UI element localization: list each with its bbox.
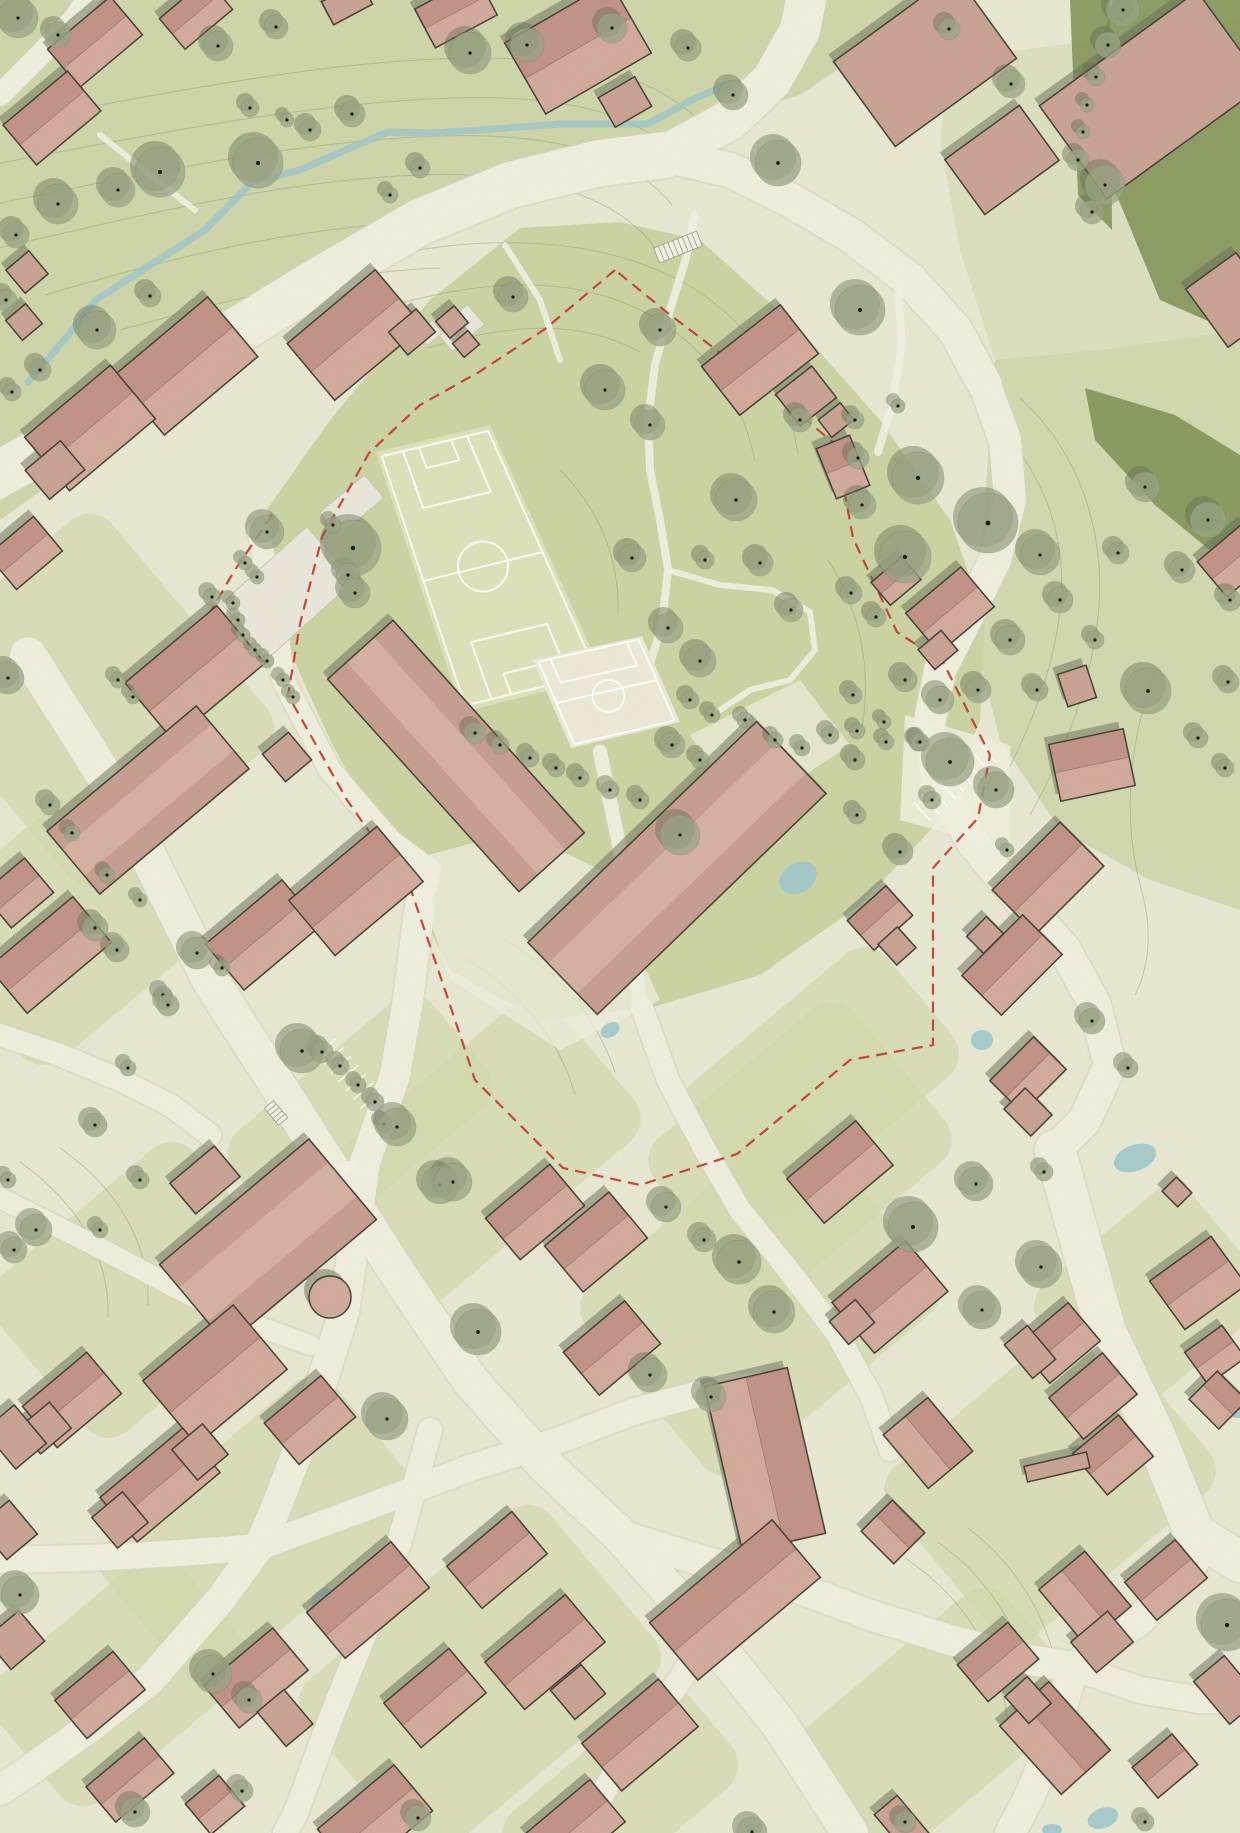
texture-overlay <box>0 0 1240 1833</box>
paper-texture <box>0 0 1240 1833</box>
map-canvas <box>0 0 1240 1833</box>
site-plan-map <box>0 0 1240 1833</box>
